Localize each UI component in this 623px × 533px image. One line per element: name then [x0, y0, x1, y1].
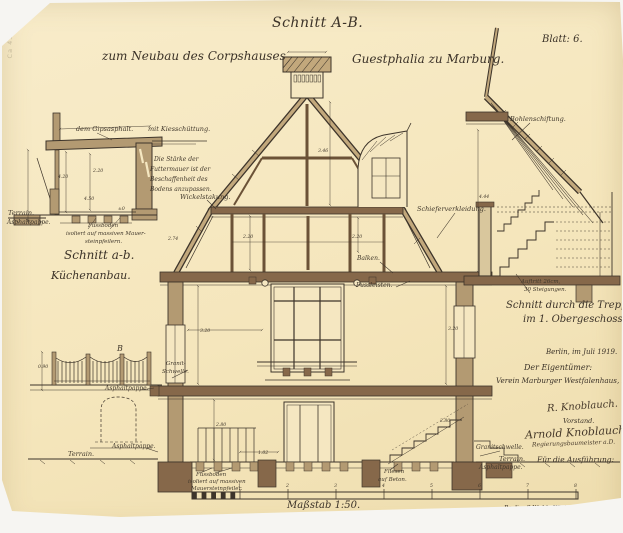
dimension-label: 4: [382, 485, 385, 490]
annotation-label: Granit-: [166, 362, 186, 368]
annotation-label: Die Stärke der: [154, 157, 199, 163]
annotation-label: B: [117, 345, 123, 353]
annotation-label: Fussboden: [88, 224, 118, 230]
annotation-label: steinpfeilern.: [85, 240, 122, 246]
annotation-label: Mauersteinpfeiler.: [191, 487, 242, 493]
annotation-label: Fliesen: [384, 470, 404, 476]
annotation-label: Schieferverkleidung.: [417, 206, 486, 213]
dimension-label: 3: [334, 485, 337, 490]
dimension-label: 4.20: [58, 176, 68, 181]
drawing-paper: Ca 457/90 Schnitt A-B. zum Neubau des Co…: [0, 0, 623, 533]
annotation-label: Asphaltpappe.: [7, 220, 51, 226]
dimension-label: 2.74: [168, 238, 178, 243]
annotation-label: Terrain.: [68, 451, 94, 458]
annotation-layer: dem Gipsasphalt.mit Kiesschüttung.Die St…: [0, 0, 623, 533]
annotation-label: isoliert auf massiven Mauer-: [66, 232, 146, 238]
annotation-label: Bohlenschiftung.: [510, 116, 566, 123]
annotation-label: Balken.: [357, 256, 380, 262]
dimension-label: 0.90: [38, 366, 48, 371]
dimension-label: 3.46: [318, 150, 328, 155]
dimension-label: 3.20: [200, 330, 210, 335]
annotation-label: Terrain.: [8, 210, 34, 217]
dimension-label: 4.50: [84, 198, 94, 203]
annotation-label: Schwelle.: [162, 370, 189, 376]
dimension-label: 6: [478, 485, 481, 490]
dimension-label: 5: [430, 485, 433, 490]
annotation-label: Asphaltpappe.: [112, 444, 156, 450]
dimension-label: 3.20: [448, 328, 458, 333]
annotation-label: Asphaltpappe.: [479, 465, 523, 471]
annotation-label: Asphaltpappe.: [105, 386, 149, 392]
annotation-label: Auftritt 26cm,: [521, 280, 560, 286]
dimension-label: 2.80: [440, 420, 450, 425]
annotation-label: Beschaffenheit des: [150, 177, 208, 183]
annotation-label: Fussboden: [196, 473, 226, 479]
annotation-label: Futtermauer ist der: [150, 167, 210, 173]
dimension-label: 8: [574, 485, 577, 490]
dimension-label: ±0: [118, 208, 125, 213]
annotation-label: Granitschwelle.: [476, 445, 524, 451]
annotation-label: Fussleisten.: [356, 283, 392, 289]
dimension-label: 4.44: [479, 196, 489, 201]
dimension-label: 2: [286, 485, 289, 490]
dimension-label: 2.20: [93, 170, 103, 175]
annotation-label: 30 Steigungen.: [524, 288, 566, 294]
dimension-label: 2.20: [243, 236, 253, 241]
annotation-label: dem Gipsasphalt.: [76, 126, 133, 133]
annotation-label: mit Kiesschüttung.: [148, 126, 210, 133]
dimension-label: 7: [526, 485, 529, 490]
annotation-label: Terrain.: [499, 456, 525, 463]
dimension-label: 2.80: [216, 424, 226, 429]
annotation-label: auf Beton.: [378, 478, 407, 484]
dimension-label: 2.20: [352, 236, 362, 241]
dimension-label: 1: [238, 485, 241, 490]
dimension-label: 1.02: [258, 452, 268, 457]
annotation-label: Wickelstakung.: [180, 194, 231, 201]
printer-note: Berlin, S.W. 11, Königgrätzerstrasse.: [504, 506, 616, 512]
scanned-sheet: Ca 457/90 Schnitt A-B. zum Neubau des Co…: [0, 0, 623, 533]
